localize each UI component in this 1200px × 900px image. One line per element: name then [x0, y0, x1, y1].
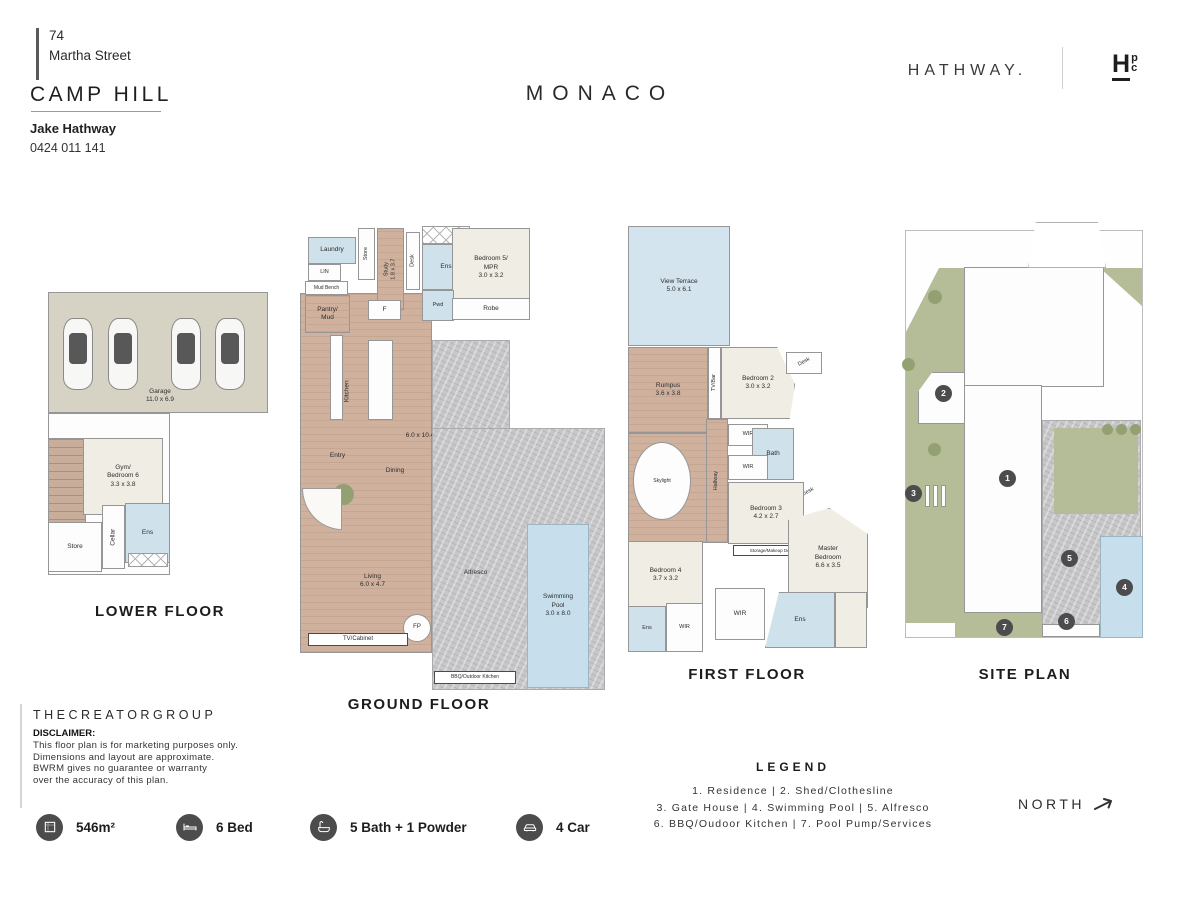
room-greendark [902, 358, 915, 371]
room-swimming-pool-3-0-x-8-0: Swimming Pool 3.0 x 8.0 [527, 524, 589, 688]
room-mud-bench: Mud Bench [305, 281, 348, 295]
footer-accent-bar [20, 704, 22, 808]
room-label: 3 [911, 488, 916, 499]
room-pwd: Pwd [422, 290, 454, 321]
room-label: Storage/Makeup Desk [750, 548, 795, 554]
room-car [171, 318, 201, 390]
site-marker-7: 7 [996, 619, 1013, 636]
room-bedroom-2-3-0-x-3-2: Bedroom 2 3.0 x 3.2 [721, 347, 795, 419]
room-label: Desk [797, 357, 811, 369]
room-label: Hallway [713, 471, 720, 490]
room-label: Kitchen [344, 380, 352, 402]
stat-bath-icon: 5 Bath + 1 Powder [310, 812, 467, 842]
room-f: F [368, 300, 401, 320]
room-label: 5 [1067, 553, 1072, 564]
room-label: Desk [409, 255, 416, 268]
disclaimer-text: This floor plan is for marketing purpose… [33, 740, 238, 786]
room-pantry-mud: Pantry/ Mud [305, 295, 350, 333]
room-car [63, 318, 93, 390]
room-label: Ens [440, 263, 451, 271]
room-greendark [928, 443, 941, 456]
room-carpet [835, 592, 867, 648]
room-white [964, 267, 1104, 387]
room-label: View Terrace 5.0 x 6.1 [660, 278, 697, 295]
room-label: Bedroom 3 4.2 x 2.7 [750, 505, 782, 522]
agent-name: Jake Hathway [30, 121, 116, 136]
room-white [964, 385, 1042, 613]
room-white [933, 485, 938, 507]
room-bbq-outdoor-kitchen: BBQ/Outdoor Kitchen [434, 671, 516, 684]
room-drive [1028, 222, 1106, 268]
room-label: 4 [1122, 582, 1127, 593]
room-greendark [1116, 424, 1127, 435]
room-alfresco: Alfresco [448, 567, 503, 579]
room-label: Ens [794, 616, 805, 624]
room-label: Master Bedroom 6.6 x 3.5 [815, 545, 841, 570]
room-label: Skylight [653, 478, 671, 485]
room-store: Store [48, 522, 102, 572]
room-car [215, 318, 245, 390]
legend-lines: 1. Residence | 2. Shed/Clothesline3. Gat… [593, 783, 993, 833]
room-label: Study 1.8 x 3.7 [383, 258, 397, 279]
room-label: Ens [642, 625, 651, 632]
legend: LEGEND 1. Residence | 2. Shed/Clotheslin… [593, 760, 993, 833]
room-label: Pantry/ Mud [317, 306, 338, 323]
disclaimer-title: DISCLAIMER: [33, 728, 95, 739]
suburb-underline [31, 111, 161, 112]
room-label: Ens [142, 529, 153, 537]
room-living-6-0-x-4-7: Living 6.0 x 4.7 [345, 570, 400, 592]
room-lin: LIN [308, 264, 341, 281]
bath-icon [310, 814, 337, 841]
floor-title-site: SITE PLAN [979, 666, 1072, 683]
room-label: Store [67, 543, 83, 551]
room-bedroom-5-mpr-3-0-x-3-2: Bedroom 5/ MPR 3.0 x 3.2 [452, 228, 530, 308]
stat-car-icon: 4 Car [516, 812, 590, 842]
room-label: Store [363, 247, 370, 260]
room-view-terrace-5-0-x-6-1: View Terrace 5.0 x 6.1 [628, 226, 730, 346]
brand-wordmark: HATHWAY. [880, 62, 1055, 80]
room-label: Pwd [433, 302, 444, 309]
floor-plan-page: 74 Martha Street CAMP HILL Jake Hathway … [0, 0, 1200, 900]
room-kitchen: Kitchen [328, 385, 368, 397]
room-label: Bath [766, 450, 779, 458]
room-label: Rumpus 3.6 x 3.8 [656, 382, 681, 399]
logo-h-letter: H [1112, 52, 1130, 81]
plan-title: MONACO [450, 82, 750, 106]
room-white [941, 485, 946, 507]
room-wir: WIR [715, 588, 765, 640]
room-wir: WIR [728, 455, 768, 480]
floor-title-ground: GROUND FLOOR [348, 696, 491, 713]
room-rumpus-3-6-x-3-8: Rumpus 3.6 x 3.8 [628, 347, 708, 433]
stat-label: 546m² [76, 820, 115, 835]
legend-title: LEGEND [593, 760, 993, 774]
room-bedroom-4-3-7-x-3-2: Bedroom 4 3.7 x 3.2 [628, 541, 703, 609]
car-icon [177, 333, 196, 364]
logo-bottom-letter: c [1131, 63, 1138, 73]
room-label: TV/Cabinet [343, 636, 373, 644]
room-label: WIR [743, 464, 754, 471]
brand-divider [1062, 47, 1063, 89]
room-label: TV/Bar [711, 374, 718, 391]
room-stone [432, 340, 510, 430]
room-label: 2 [941, 388, 946, 399]
room-label: Dining [386, 467, 404, 475]
north-indicator: NORTH [1018, 796, 1116, 812]
room-dining: Dining [370, 465, 420, 477]
room-label: Cellar [109, 529, 117, 546]
site-marker-2: 2 [935, 385, 952, 402]
legend-line: 3. Gate House | 4. Swimming Pool | 5. Al… [593, 800, 993, 817]
north-arrow-icon [1094, 797, 1116, 812]
room-label: Alfresco [464, 569, 487, 577]
room-tv-cabinet: TV/Cabinet [308, 633, 408, 646]
stat-bed-icon: 6 Bed [176, 812, 253, 842]
room-label: Bedroom 2 3.0 x 3.2 [742, 375, 774, 392]
site-marker-6: 6 [1058, 613, 1075, 630]
floor-title-lower: LOWER FLOOR [95, 603, 225, 620]
room-label: Garage 11.0 x 6.9 [146, 388, 174, 405]
room-label: Mud Bench [314, 285, 339, 292]
room-white [330, 335, 343, 420]
room-hallway: Hallway [706, 419, 728, 543]
room-label: Laundry [320, 246, 344, 254]
room-label: 7 [1002, 622, 1007, 633]
room-desk: Desk [406, 232, 420, 290]
room-tv-bar: TV/Bar [708, 347, 721, 419]
room-label: WIR [734, 610, 747, 618]
bed-icon [176, 814, 203, 841]
site-marker-4: 4 [1116, 579, 1133, 596]
company-name: THECREATORGROUP [33, 708, 216, 722]
disclaimer-line: over the accuracy of this plan. [33, 775, 238, 787]
room-greendark [928, 290, 942, 304]
room-green [1054, 428, 1138, 514]
area-icon [36, 814, 63, 841]
room-label: WIR [679, 624, 690, 631]
disclaimer-line: This floor plan is for marketing purpose… [33, 740, 238, 752]
stat-label: 4 Car [556, 820, 590, 835]
room-hatch [128, 553, 168, 567]
room-label: Robe [483, 305, 499, 313]
car-icon [114, 333, 133, 364]
legend-line: 1. Residence | 2. Shed/Clothesline [593, 783, 993, 800]
room-white [925, 485, 930, 507]
stat-label: 6 Bed [216, 820, 253, 835]
car-icon [69, 333, 88, 364]
room-car [108, 318, 138, 390]
room-garage-11-0-x-6-9: Garage 11.0 x 6.9 [110, 384, 210, 408]
room-study-1-8-x-3-7: Study 1.8 x 3.7 [377, 228, 404, 310]
room-label: 6.0 x 10.4 [406, 432, 435, 440]
car-icon [516, 814, 543, 841]
brand-logo: H p c [1112, 52, 1138, 81]
street-name: Martha Street [49, 48, 131, 63]
agent-phone: 0424 011 141 [30, 141, 106, 155]
stat-label: 5 Bath + 1 Powder [350, 820, 467, 835]
disclaimer-line: Dimensions and layout are approximate. [33, 752, 238, 764]
room-laundry: Laundry [308, 237, 356, 264]
floor-title-first: FIRST FLOOR [688, 666, 806, 683]
site-marker-3: 3 [905, 485, 922, 502]
car-icon [221, 333, 240, 364]
room-wir: WIR [666, 603, 703, 652]
room-label: 6 [1064, 616, 1069, 627]
room-greendark [1102, 424, 1113, 435]
room-greendark [1130, 424, 1141, 435]
header-accent-bar [36, 28, 39, 80]
room-label: 1 [1005, 473, 1010, 484]
logo-small-letters: p c [1131, 53, 1138, 73]
room-ens: Ens [765, 592, 835, 648]
room-store: Store [358, 228, 375, 280]
room-white [368, 340, 393, 420]
room-label: Gym/ Bedroom 6 3.3 x 3.8 [107, 464, 139, 489]
room-label: Bedroom 5/ MPR 3.0 x 3.2 [474, 255, 508, 280]
legend-line: 6. BBQ/Oudoor Kitchen | 7. Pool Pump/Ser… [593, 816, 993, 833]
disclaimer-line: BWRM gives no guarantee or warranty [33, 763, 238, 775]
room-entry: Entry [315, 450, 360, 462]
room-skylight: Skylight [633, 442, 691, 520]
room-label: Bedroom 4 3.7 x 3.2 [650, 567, 682, 584]
room-label: F [383, 306, 387, 314]
site-marker-5: 5 [1061, 550, 1078, 567]
room-label: LIN [320, 269, 329, 276]
room-robe: Robe [452, 298, 530, 320]
room-label: Swimming Pool 3.0 x 8.0 [543, 593, 573, 618]
room-desk: Desk [786, 352, 822, 374]
site-marker-1: 1 [999, 470, 1016, 487]
suburb-title: CAMP HILL [30, 83, 172, 107]
north-label: NORTH [1018, 796, 1085, 812]
room-cellar: Cellar [102, 505, 125, 569]
stat-area-icon: 546m² [36, 812, 115, 842]
room-label: Living 6.0 x 4.7 [360, 573, 385, 590]
street-number: 74 [49, 28, 64, 43]
room-label: FP [413, 624, 421, 632]
room-label: BBQ/Outdoor Kitchen [451, 674, 499, 681]
room-ens: Ens [628, 606, 666, 652]
room-label: Entry [330, 452, 345, 460]
